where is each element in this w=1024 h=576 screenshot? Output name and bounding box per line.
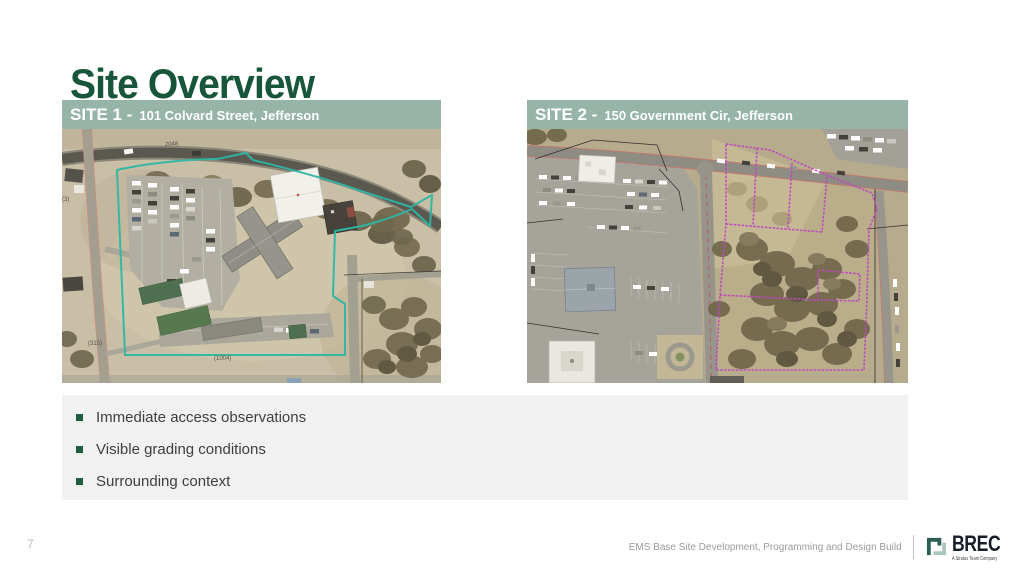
bullet-square-icon xyxy=(76,446,83,453)
bullet-text: Immediate access observations xyxy=(96,409,306,426)
bullet-square-icon xyxy=(76,478,83,485)
brec-logo-icon xyxy=(925,535,948,558)
site2-panel: SITE 2 - 150 Government Cir, Jefferson xyxy=(527,100,908,383)
brec-logo-text: BREC A Stratus Team Company xyxy=(952,533,1012,562)
page-number: 7 xyxy=(27,537,34,551)
bullet-text: Surrounding context xyxy=(96,473,230,490)
building-white-roof xyxy=(270,167,326,223)
map-label-parcel1004: (1004) xyxy=(214,356,231,362)
site1-map: (65) (3) (315) (1004) 2048 xyxy=(62,129,441,383)
site2-map xyxy=(527,129,908,383)
bullet-row: Immediate access observations xyxy=(62,401,908,433)
site2-header: SITE 2 - 150 Government Cir, Jefferson xyxy=(527,100,908,129)
site2-label: SITE 2 - xyxy=(535,105,597,125)
brec-logo-name: BREC xyxy=(952,533,1000,555)
site1-aerial-image: (65) (3) (315) (1004) 2048 xyxy=(62,129,441,383)
site2-aerial-image xyxy=(527,129,908,383)
map-label-road: 2048 xyxy=(165,141,179,148)
bullet-square-icon xyxy=(76,414,83,421)
bullet-text: Visible grading conditions xyxy=(96,441,266,458)
site1-panel: SITE 1 - 101 Colvard Street, Jefferson xyxy=(62,100,441,383)
site1-address: 101 Colvard Street, Jefferson xyxy=(139,106,319,123)
brec-logo-tagline: A Stratus Team Company xyxy=(952,556,997,562)
site1-header: SITE 1 - 101 Colvard Street, Jefferson xyxy=(62,100,441,129)
site2-address: 150 Government Cir, Jefferson xyxy=(604,106,793,123)
bullet-row: Surrounding context xyxy=(62,465,908,497)
footer-divider xyxy=(913,535,914,559)
roundabout xyxy=(657,335,703,379)
slide: Site Overview SITE 1 - 101 Colvard Stree… xyxy=(0,0,1024,576)
site1-label: SITE 1 - xyxy=(70,105,132,125)
map-label-route3: (3) xyxy=(62,197,69,203)
brec-logo: BREC A Stratus Team Company xyxy=(925,533,1012,562)
footer: EMS Base Site Development, Programming a… xyxy=(629,531,1012,563)
map-label-route65: (65) xyxy=(64,159,75,165)
map-label-parcel315: (315) xyxy=(88,341,102,347)
building-white-north xyxy=(578,155,615,183)
observations-box: Immediate access observations Visible gr… xyxy=(62,395,908,500)
bullet-row: Visible grading conditions xyxy=(62,433,908,465)
building-bluegray xyxy=(564,267,615,312)
footer-project-title: EMS Base Site Development, Programming a… xyxy=(629,542,902,553)
